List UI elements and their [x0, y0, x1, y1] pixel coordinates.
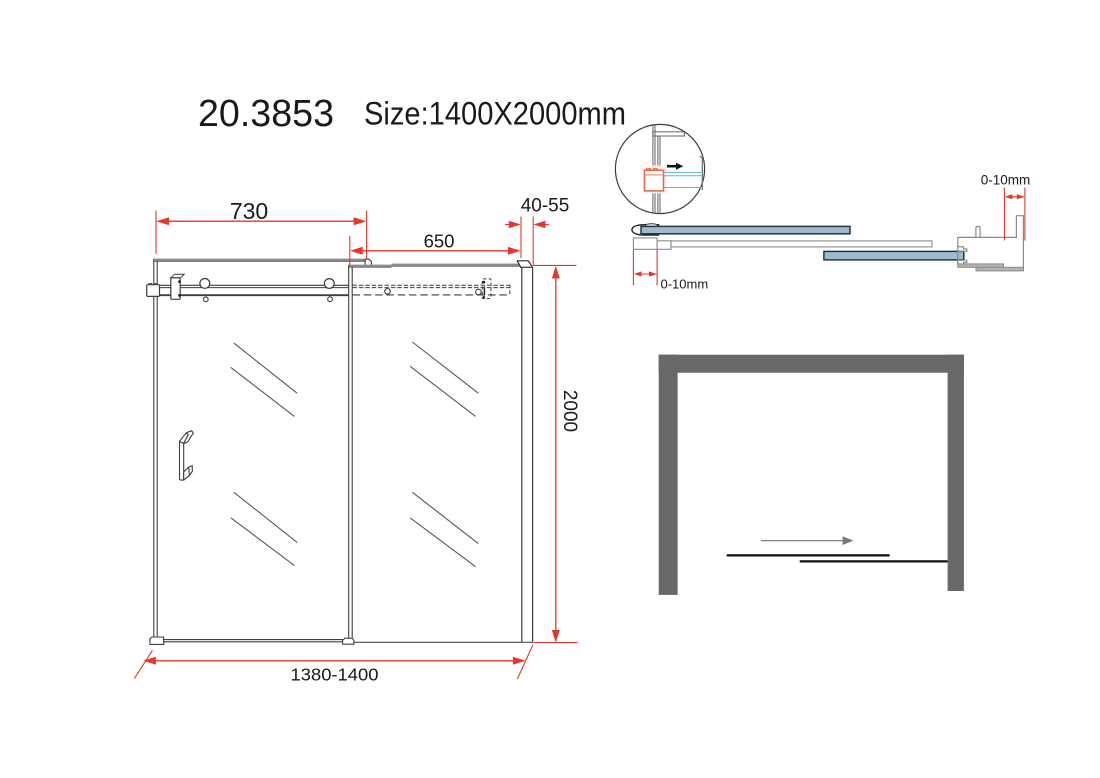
svg-text:20.3853: 20.3853: [198, 93, 334, 135]
svg-text:650: 650: [424, 231, 455, 252]
svg-text:730: 730: [230, 198, 268, 224]
svg-text:2000: 2000: [559, 390, 580, 432]
svg-text:Size:1400X2000mm: Size:1400X2000mm: [364, 96, 626, 132]
svg-text:0-10mm: 0-10mm: [981, 172, 1031, 187]
svg-text:40-55: 40-55: [521, 196, 570, 217]
svg-text:0-10mm: 0-10mm: [661, 277, 709, 292]
svg-text:1380-1400: 1380-1400: [291, 665, 379, 685]
